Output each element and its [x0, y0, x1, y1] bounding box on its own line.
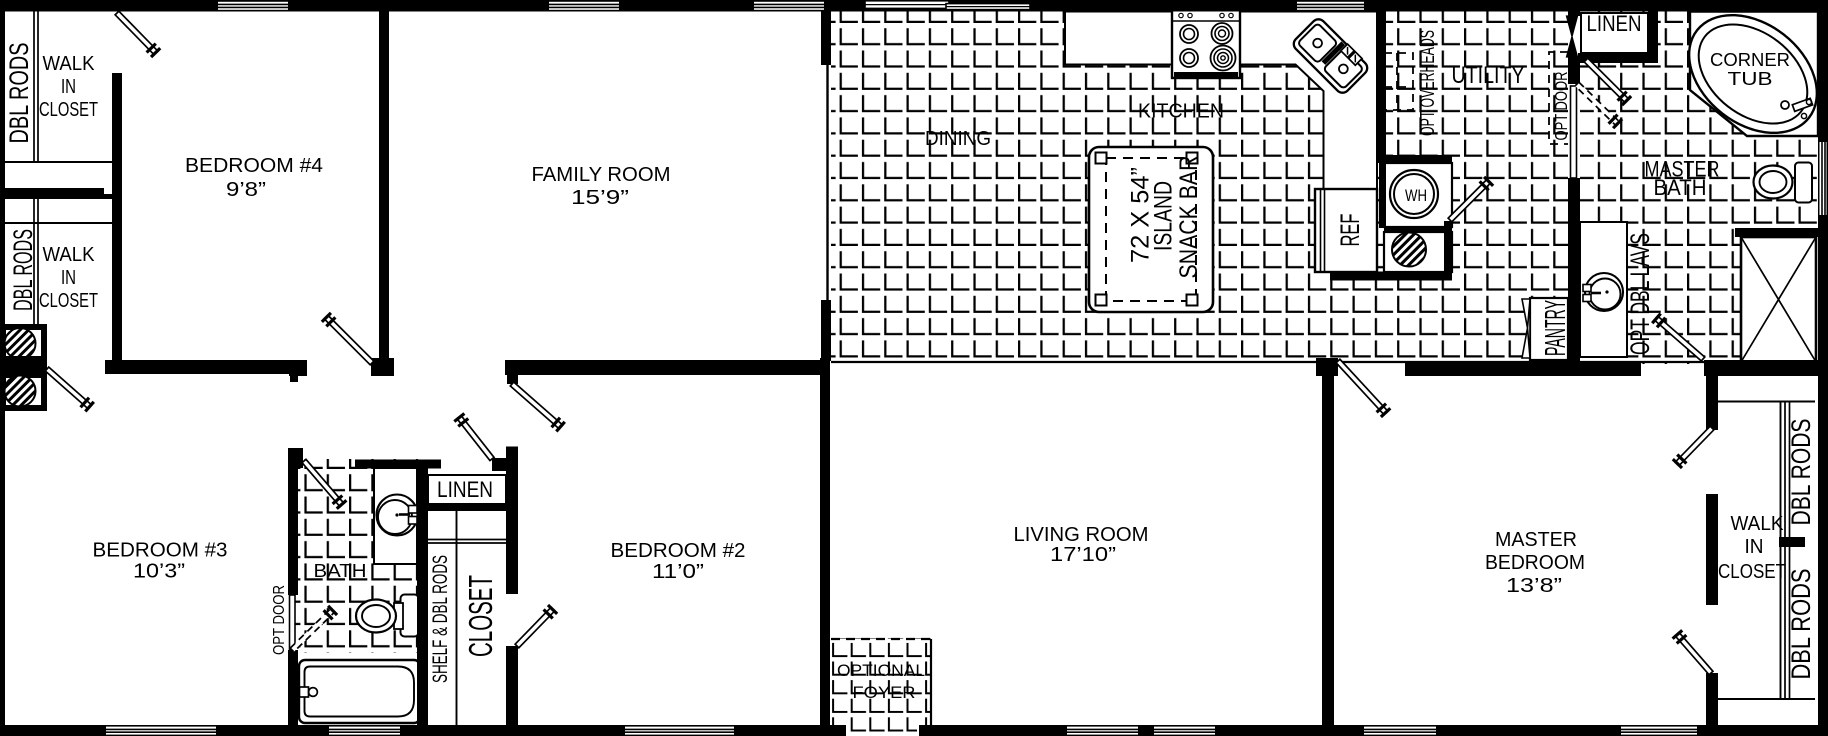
svg-text:10’3”: 10’3”: [133, 560, 185, 583]
svg-text:13’8”: 13’8”: [1506, 574, 1562, 597]
svg-text:BATH: BATH: [314, 560, 367, 581]
svg-text:IN: IN: [61, 75, 76, 98]
svg-text:OPTIONAL: OPTIONAL: [837, 661, 925, 680]
svg-text:OPT DBL LAVS: OPT DBL LAVS: [1625, 233, 1655, 355]
svg-text:BATH: BATH: [1654, 175, 1707, 200]
svg-text:CLOSET: CLOSET: [39, 289, 98, 312]
svg-text:BEDROOM #4: BEDROOM #4: [185, 154, 323, 177]
svg-text:IN: IN: [61, 266, 76, 289]
svg-text:CLOSET: CLOSET: [1718, 560, 1786, 583]
svg-text:DBL RODS: DBL RODS: [4, 43, 34, 144]
svg-text:WH: WH: [1405, 186, 1427, 205]
svg-text:CLOSET: CLOSET: [462, 575, 499, 657]
svg-text:CLOSET: CLOSET: [39, 98, 98, 121]
svg-text:LINEN: LINEN: [1587, 11, 1642, 36]
svg-text:ISLAND: ISLAND: [1150, 181, 1178, 251]
svg-text:UTILITY: UTILITY: [1452, 62, 1525, 89]
svg-text:BEDROOM: BEDROOM: [1485, 551, 1585, 574]
svg-text:15’9”: 15’9”: [571, 186, 629, 209]
svg-text:11’0”: 11’0”: [652, 560, 704, 583]
svg-text:REF: REF: [1335, 214, 1365, 247]
svg-text:BEDROOM #3: BEDROOM #3: [93, 539, 228, 562]
svg-text:OPT DOOR: OPT DOOR: [271, 585, 288, 655]
svg-text:WALK: WALK: [43, 52, 95, 75]
svg-text:IN: IN: [1745, 535, 1764, 558]
svg-text:DBL RODS: DBL RODS: [1786, 569, 1816, 680]
svg-text:17’10”: 17’10”: [1050, 543, 1116, 566]
svg-text:SHELF & DBL RODS: SHELF & DBL RODS: [429, 555, 452, 683]
svg-text:DINING: DINING: [925, 127, 991, 150]
svg-text:WALK: WALK: [1731, 512, 1784, 535]
svg-text:9’8”: 9’8”: [226, 178, 266, 201]
svg-text:BEDROOM #2: BEDROOM #2: [611, 539, 746, 562]
svg-text:LINEN: LINEN: [437, 477, 493, 502]
svg-text:DBL RODS: DBL RODS: [1786, 419, 1816, 526]
svg-text:DBL RODS: DBL RODS: [8, 229, 38, 311]
svg-text:OPT DOOR: OPT DOOR: [1551, 72, 1571, 141]
svg-text:CORNER: CORNER: [1710, 49, 1790, 70]
svg-text:FAMILY ROOM: FAMILY ROOM: [532, 163, 671, 186]
svg-text:SNACK BAR: SNACK BAR: [1175, 156, 1203, 279]
svg-text:PANTRY: PANTRY: [1540, 300, 1572, 356]
svg-text:FOYER: FOYER: [853, 683, 916, 702]
svg-text:WALK: WALK: [43, 243, 95, 266]
svg-text:TUB: TUB: [1728, 68, 1773, 89]
svg-text:OPT OVERHEADS: OPT OVERHEADS: [1417, 30, 1439, 136]
svg-text:MASTER: MASTER: [1495, 528, 1577, 551]
svg-text:KITCHEN: KITCHEN: [1138, 100, 1224, 123]
